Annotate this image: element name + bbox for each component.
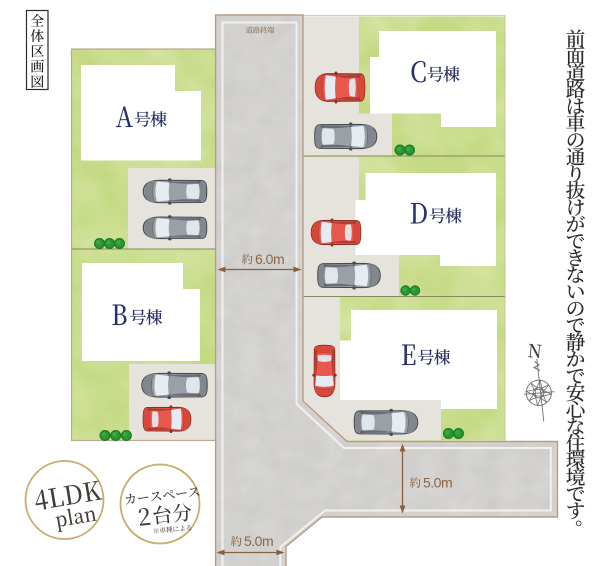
svg-text:6.0m: 6.0m <box>255 251 284 267</box>
svg-text:5.0m: 5.0m <box>423 475 452 491</box>
svg-text:5.0m: 5.0m <box>244 533 273 549</box>
